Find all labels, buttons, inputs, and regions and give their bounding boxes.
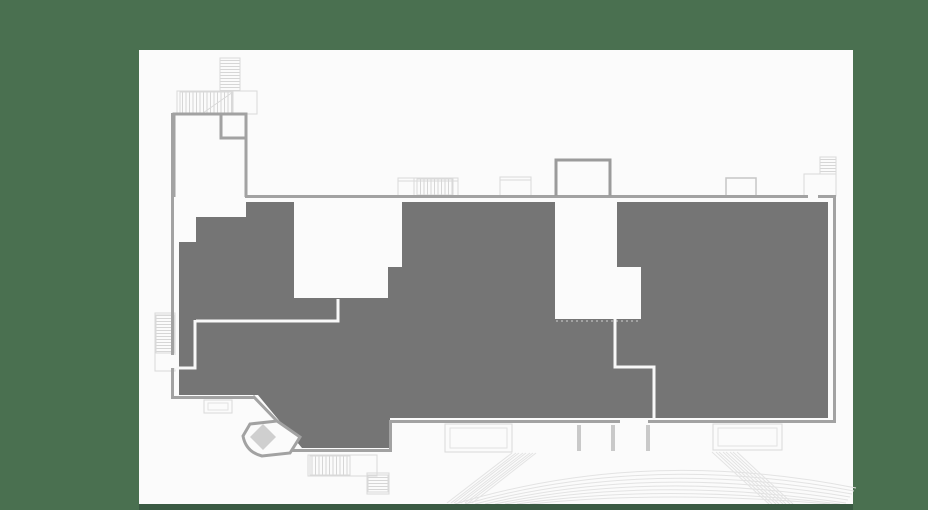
bottom-bar xyxy=(139,504,853,510)
screenshot-root xyxy=(0,0,928,510)
pit-stub xyxy=(646,425,650,451)
floor-plan-svg xyxy=(0,0,928,510)
upper-stair-treads xyxy=(180,92,232,113)
highlighted-zone[interactable] xyxy=(179,202,828,448)
entrance-stair-treads xyxy=(417,179,453,195)
lower-stair-horizontal-treads xyxy=(310,456,350,475)
pit-stub xyxy=(577,425,581,451)
lower-stair-vertical-treads xyxy=(368,475,388,492)
top-right-stair xyxy=(820,157,836,174)
upper-ladder xyxy=(220,58,240,91)
left-wall-door-gap xyxy=(170,355,176,368)
top-wall-notch xyxy=(808,192,818,198)
pit-stub xyxy=(611,425,615,451)
